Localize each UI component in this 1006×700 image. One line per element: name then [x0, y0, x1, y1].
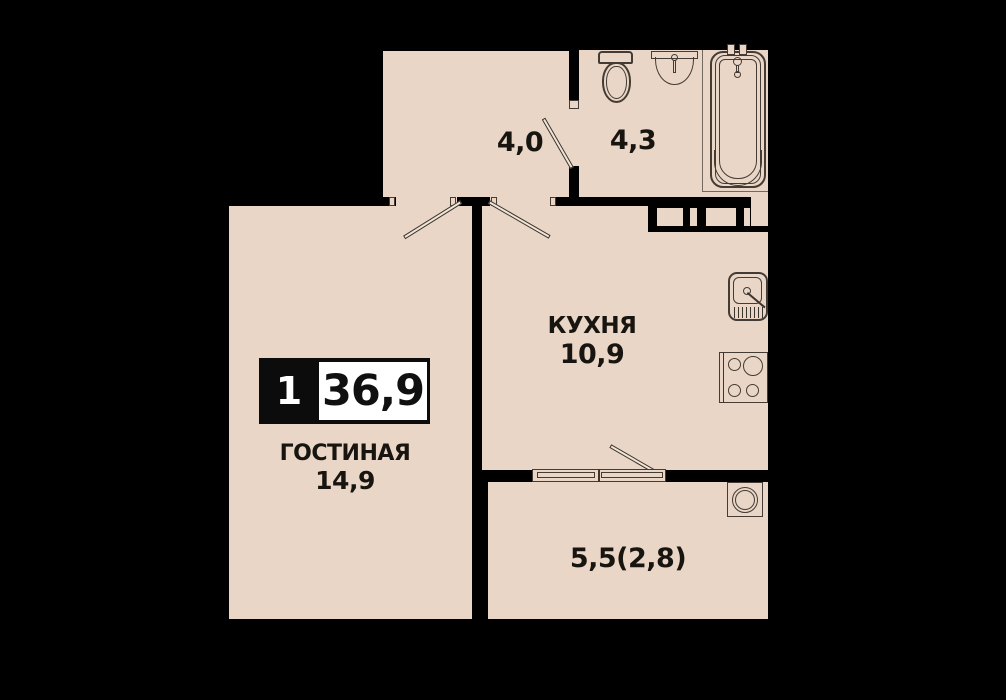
bathtub-faucet-valve	[727, 44, 735, 55]
total-area-badge: 1 36,9	[259, 358, 430, 424]
toilet-bowl-inner	[606, 66, 627, 99]
washing-machine-drum-inner	[735, 490, 755, 510]
stove-burner	[743, 356, 763, 376]
kitchen-area-label: 10,9	[542, 337, 642, 371]
floor-plan: 1 36,9 4,0 4,3 КУХНЯ 10,9 ГОСТИНАЯ 14,9 …	[0, 0, 1006, 700]
stove-edge-line	[723, 352, 724, 403]
kitchen-sink-drainboard	[734, 307, 763, 318]
doorway-hall-living	[396, 197, 457, 207]
vent-shaft-niche	[751, 197, 768, 226]
balcony-window-mullion	[598, 469, 600, 482]
vent-shaft-box	[706, 208, 736, 226]
vent-shaft-box	[690, 208, 697, 226]
bathtub-faucet-valve	[739, 44, 747, 55]
door-jamb	[550, 197, 556, 206]
vent-shaft-box	[657, 208, 683, 226]
living-area-label: 14,9	[295, 463, 395, 497]
stove-burner	[746, 384, 759, 397]
rooms-count: 1	[259, 358, 319, 424]
balcony-window-pane	[537, 472, 595, 478]
balcony-window-pane	[601, 472, 663, 478]
washbasin-faucet-stem	[673, 60, 676, 73]
doorway-hall-bathroom	[569, 109, 579, 166]
door-jamb	[569, 100, 579, 109]
hallway-area-label: 4,0	[470, 122, 570, 162]
door-jamb	[389, 197, 395, 206]
bathtub-niche-line	[702, 50, 703, 192]
bathroom-area-label: 4,3	[583, 120, 683, 160]
room-kitchen-floor-right	[648, 232, 768, 470]
balcony-area-label: 5,5(2,8)	[528, 540, 728, 576]
bathtub-niche-line	[702, 191, 768, 192]
total-area-value: 36,9	[319, 362, 427, 420]
vent-shaft-box	[744, 208, 750, 226]
stove-burner	[728, 384, 741, 397]
bathtub-faucet-drop	[734, 71, 741, 78]
stove-burner	[728, 358, 741, 371]
